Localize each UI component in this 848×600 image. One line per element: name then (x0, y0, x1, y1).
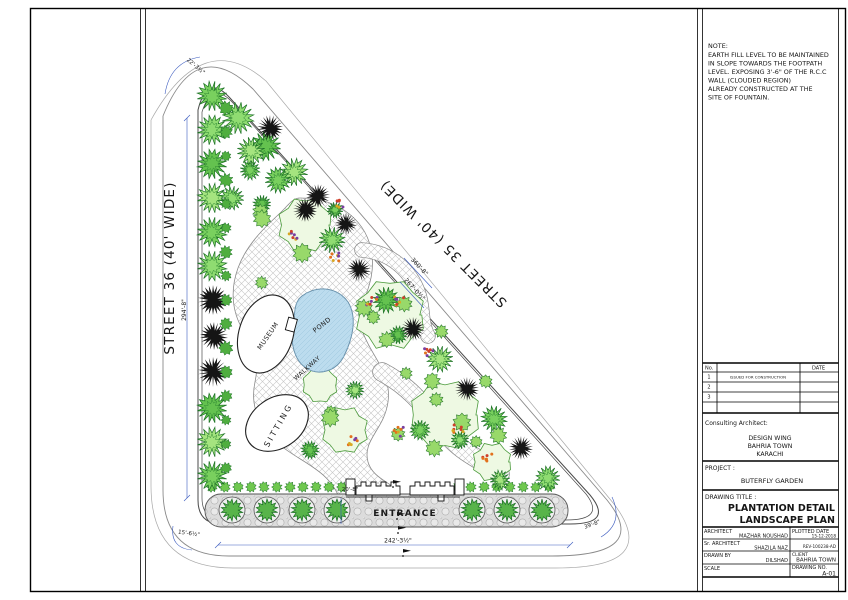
flower-icon (398, 301, 401, 304)
benchmark-base-icon (397, 532, 399, 534)
hedge-bush-icon (311, 482, 322, 493)
svg-text:KARACHI: KARACHI (756, 451, 783, 458)
flower-icon (395, 303, 398, 306)
benchmark-base-icon (392, 486, 394, 488)
flower-icon (369, 303, 372, 306)
flower-icon (394, 297, 397, 300)
flower-icon (366, 303, 369, 306)
rev-no-header: No. (705, 366, 714, 372)
svg-text:BAHRIA TOWN: BAHRIA TOWN (748, 443, 793, 450)
shrub-icon (221, 415, 231, 425)
file-no-value: REV-100238-AD (803, 544, 836, 549)
svg-text:IN SLOPE TOWARDS THE FOOTPATH: IN SLOPE TOWARDS THE FOOTPATH (708, 60, 822, 68)
flower-icon (402, 296, 405, 299)
flower-icon (332, 259, 335, 262)
flower-icon (337, 255, 340, 258)
rev-date-header: DATE (812, 366, 825, 372)
flower-icon (424, 351, 427, 354)
drawn-value: DILSHAD (766, 558, 788, 564)
flower-icon (397, 426, 400, 429)
flower-icon (453, 424, 456, 427)
sr-architect-label: Sr. ARCHITECT (704, 541, 741, 547)
svg-text:LEVEL. EXPOSING 3'-6" OF THE R: LEVEL. EXPOSING 3'-6" OF THE R.C.C (708, 68, 827, 76)
shrub-icon (219, 173, 233, 188)
flower-icon (399, 428, 402, 431)
shrub-icon (219, 245, 232, 258)
scale-label: SCALE (704, 566, 720, 572)
project-value: BUTERFLY GARDEN (741, 477, 803, 485)
flower-icon (290, 230, 293, 233)
dim-bottom-right: 39'-8" (584, 519, 602, 530)
flower-icon (337, 259, 340, 262)
flower-icon (291, 236, 294, 239)
bush-icon (392, 427, 405, 441)
flower-icon (295, 237, 298, 240)
flower-icon (338, 200, 341, 203)
consulting-label: Consulting Architect: (705, 420, 768, 427)
shrub-icon (221, 271, 232, 282)
drawing-sheet: MUSEUM POND SITTING WALKWAY ENTRANCE STR… (0, 0, 848, 600)
benchmark-icon (403, 549, 411, 556)
staff-grid: ARCHITECT MAZHAR NOUSHAD PLOTTED DATE 15… (703, 527, 839, 578)
tree-green-icon (240, 160, 260, 180)
dim-left: 294'-8" (181, 299, 188, 321)
shrub-icon (220, 318, 232, 331)
svg-text:1: 1 (707, 375, 710, 381)
flower-icon (451, 429, 454, 432)
flower-icon (370, 300, 373, 303)
entrance-label: ENTRANCE (373, 509, 437, 519)
drawn-label: DRAWN BY (704, 553, 732, 559)
plan-sheet-svg: MUSEUM POND SITTING WALKWAY ENTRANCE STR… (0, 0, 848, 600)
flower-icon (356, 439, 359, 442)
tree-dark-icon (509, 436, 533, 460)
bush-icon (479, 375, 492, 388)
drawing-title-label: DRAWING TITLE : (705, 494, 756, 501)
svg-text:EARTH FILL LEVEL TO BE MAINTAI: EARTH FILL LEVEL TO BE MAINTAINED (708, 51, 829, 59)
sr-architect-value: SHAZILA NAZ (754, 546, 788, 552)
svg-text:3: 3 (707, 395, 710, 401)
svg-text:2: 2 (707, 385, 710, 391)
dim-bottom-left: 15'-6½" (178, 529, 201, 539)
shrub-icon (221, 151, 231, 161)
flower-icon (350, 443, 353, 446)
flower-icon (484, 458, 487, 461)
flower-icon (431, 349, 434, 352)
flower-icon (399, 435, 402, 438)
tree-green-icon (481, 406, 507, 432)
hedge-bush-icon (233, 482, 244, 493)
flower-icon (335, 205, 338, 208)
hedge-bush-icon (479, 482, 490, 493)
drawing-title-1: PLANTATION DETAIL (728, 503, 835, 514)
flower-icon (397, 430, 400, 433)
svg-text:ALREADY CONSTRUCTED AT THE: ALREADY CONSTRUCTED AT THE (708, 85, 813, 93)
flower-icon (370, 296, 373, 299)
architect-label: ARCHITECT (704, 529, 733, 535)
svg-text:WALL (CLOUDED REGION): WALL (CLOUDED REGION) (708, 77, 791, 85)
architect-value: MAZHAR NOUSHAD (739, 534, 788, 540)
flower-icon (375, 298, 378, 301)
benchmark-base-icon (402, 555, 404, 557)
flower-icon (426, 354, 429, 357)
drawing-title-2: LANDSCAPE PLAN (740, 515, 836, 526)
svg-text:SITE OF FOUNTAIN.: SITE OF FOUNTAIN. (708, 94, 769, 102)
hedge-bush-icon (272, 482, 283, 493)
hedge-bush-icon (285, 482, 296, 493)
street-36-label: STREET 36 (40' WIDE) (162, 181, 178, 354)
hedge-bush-icon (518, 482, 529, 493)
flower-icon (402, 426, 405, 429)
note-block: NOTE: EARTH FILL LEVEL TO BE MAINTAINED … (708, 42, 829, 102)
client-value: BAHRIA TOWN (796, 558, 836, 564)
flower-icon (490, 453, 493, 456)
flower-icon (481, 457, 484, 460)
revision-table: No. DATE 1 ISSUED FOR CONSTRUCTION 2 3 (703, 363, 839, 413)
note-title: NOTE: (708, 42, 728, 50)
flower-icon (293, 233, 296, 236)
dim-bottom: 242'-3½" (384, 538, 412, 545)
hedge-bush-icon (466, 482, 477, 493)
flower-icon (460, 426, 463, 429)
dim-entrance: 20'-8" (342, 487, 359, 493)
shrub-icon (219, 341, 233, 355)
title-block: No. DATE 1 ISSUED FOR CONSTRUCTION 2 3 C… (703, 363, 839, 578)
rev-row-desc: ISSUED FOR CONSTRUCTION (730, 375, 786, 380)
plotted-value: 15-12-2018 (812, 534, 837, 539)
flower-icon (329, 256, 332, 259)
flower-icon (423, 347, 426, 350)
drawing-no-value: A-01 (822, 571, 836, 578)
hedge-bush-icon (298, 482, 309, 493)
flower-icon (486, 454, 489, 457)
project-label: PROJECT : (705, 465, 735, 472)
hedge-bush-icon (259, 482, 270, 493)
hedge-bush-icon (246, 482, 257, 493)
flower-icon (349, 435, 352, 438)
flower-icon (337, 252, 340, 255)
flower-icon (462, 430, 465, 433)
svg-text:DESIGN WING: DESIGN WING (748, 435, 791, 442)
flower-icon (331, 252, 334, 255)
flower-icon (341, 205, 344, 208)
